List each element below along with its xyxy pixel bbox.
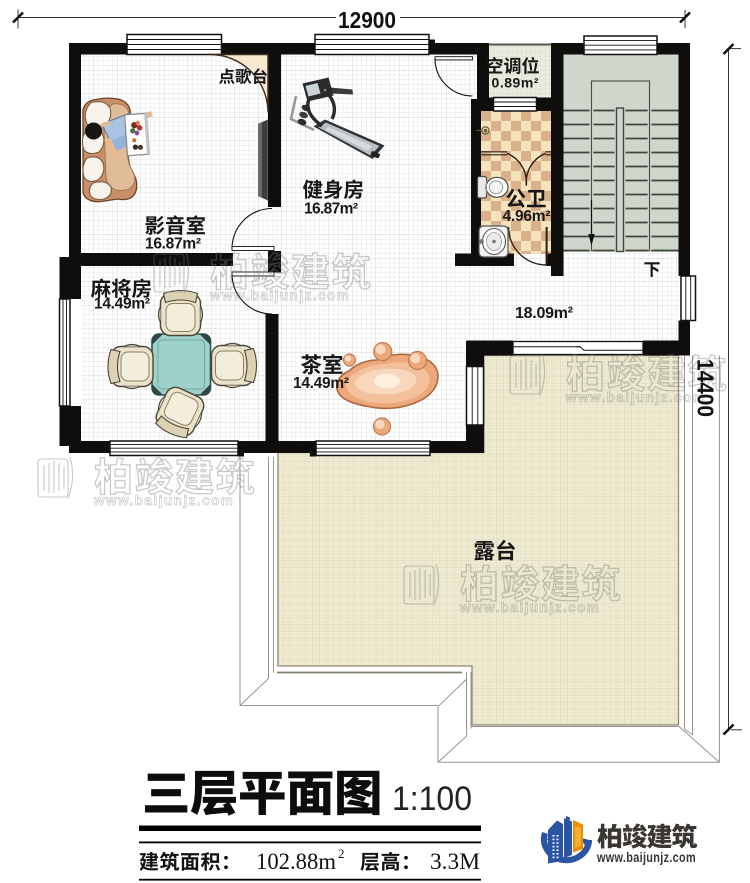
svg-text:2: 2 xyxy=(338,846,345,861)
svg-text:102.88m: 102.88m xyxy=(256,849,336,874)
svg-text:14.49m²: 14.49m² xyxy=(94,296,150,313)
svg-text:www.baijunjz.com: www.baijunjz.com xyxy=(93,493,234,508)
svg-text:16.87m²: 16.87m² xyxy=(304,201,358,218)
svg-text:www.baijunjz.com: www.baijunjz.com xyxy=(459,600,600,615)
svg-text:www.baijunjz.com: www.baijunjz.com xyxy=(565,390,706,405)
svg-text:www.baijunjz.com: www.baijunjz.com xyxy=(209,288,350,303)
svg-text:18.09m²: 18.09m² xyxy=(515,305,573,322)
svg-text:0.89m²: 0.89m² xyxy=(492,75,539,91)
svg-text:4.96m²: 4.96m² xyxy=(503,208,551,225)
svg-text:14.49m²: 14.49m² xyxy=(293,375,349,392)
svg-text:12900: 12900 xyxy=(338,7,396,33)
svg-text:3.3M: 3.3M xyxy=(430,849,480,874)
svg-text:www.baijunjz.com: www.baijunjz.com xyxy=(596,850,696,865)
svg-text:1:100: 1:100 xyxy=(392,780,472,818)
svg-text:14400: 14400 xyxy=(693,359,719,417)
svg-text:16.87m²: 16.87m² xyxy=(145,236,201,253)
